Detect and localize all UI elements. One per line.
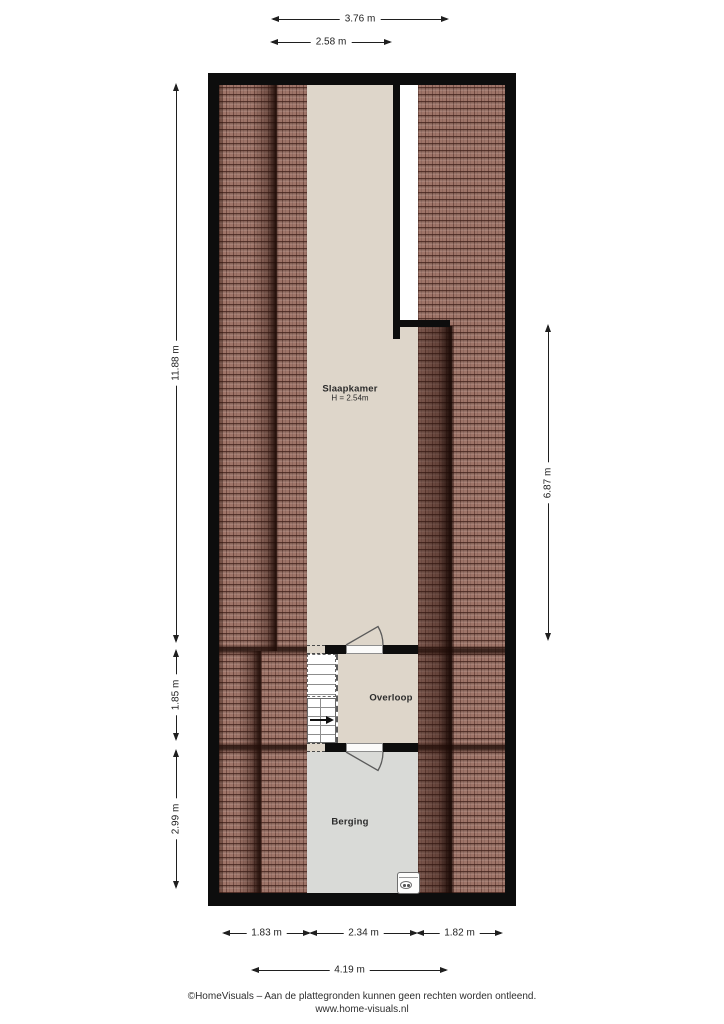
dim-arrow-icon: [416, 930, 424, 936]
dim-label: 2.58 m: [311, 37, 352, 48]
dim-arrow-icon: [440, 967, 448, 973]
dim-label: 11.88 m: [171, 340, 182, 385]
building-outline: Slaapkamer H = 2.54m Overloop Berging: [208, 73, 516, 906]
dim-label: 6.87 m: [543, 462, 554, 503]
dim-label: 1.85 m: [171, 675, 182, 716]
dim-label: 2.34 m: [343, 928, 384, 939]
dimension-bottom-419: 4.19 m: [252, 964, 447, 976]
dim-label: 1.82 m: [439, 928, 480, 939]
dim-arrow-icon: [173, 881, 179, 889]
dimension-right-687: 6.87 m: [542, 325, 554, 640]
dim-arrow-icon: [222, 930, 230, 936]
dimension-top-258: 2.58 m: [271, 36, 391, 48]
room-label-overloop: Overloop: [369, 693, 412, 704]
dim-arrow-icon: [173, 733, 179, 741]
dim-arrow-icon: [545, 633, 551, 641]
dimension-left-299: 2.99 m: [170, 750, 182, 888]
room-height-note: H = 2.54m: [322, 394, 377, 403]
room-name: Berging: [331, 817, 368, 828]
floorplan-page: Slaapkamer H = 2.54m Overloop Berging 3.…: [0, 0, 724, 1024]
dim-arrow-icon: [309, 930, 317, 936]
dim-arrow-icon: [173, 635, 179, 643]
dim-arrow-icon: [251, 967, 259, 973]
footer: ©HomeVisuals – Aan de plattegronden kunn…: [0, 990, 724, 1016]
dim-label: 4.19 m: [329, 965, 370, 976]
dim-arrow-icon: [545, 324, 551, 332]
room-name: Overloop: [369, 693, 412, 704]
dim-arrow-icon: [173, 83, 179, 91]
dim-label: 3.76 m: [340, 14, 381, 25]
dimension-bottom-234: 2.34 m: [310, 927, 417, 939]
dim-arrow-icon: [271, 16, 279, 22]
dim-arrow-icon: [270, 39, 278, 45]
appliance-dial: [400, 881, 412, 889]
washing-machine-icon: [397, 872, 420, 894]
footer-disclaimer: ©HomeVisuals – Aan de plattegronden kunn…: [0, 990, 724, 1003]
dim-arrow-icon: [384, 39, 392, 45]
room-label-slaapkamer: Slaapkamer H = 2.54m: [322, 384, 377, 403]
dimension-top-376: 3.76 m: [272, 13, 448, 25]
dimension-bottom-183: 1.83 m: [223, 927, 310, 939]
room-label-berging: Berging: [331, 817, 368, 828]
door-swing-icon: [208, 73, 516, 906]
dim-arrow-icon: [495, 930, 503, 936]
dimension-left-1188: 11.88 m: [170, 84, 182, 642]
dim-label: 1.83 m: [246, 928, 287, 939]
appliance-detail: [399, 877, 418, 878]
dim-arrow-icon: [441, 16, 449, 22]
appliance-dot: [407, 884, 410, 887]
footer-url: www.home-visuals.nl: [0, 1003, 724, 1016]
dim-label: 2.99 m: [171, 799, 182, 840]
dimension-left-185: 1.85 m: [170, 650, 182, 740]
dim-arrow-icon: [173, 649, 179, 657]
appliance-dot: [403, 884, 406, 887]
dimension-bottom-182: 1.82 m: [417, 927, 502, 939]
dim-arrow-icon: [173, 749, 179, 757]
